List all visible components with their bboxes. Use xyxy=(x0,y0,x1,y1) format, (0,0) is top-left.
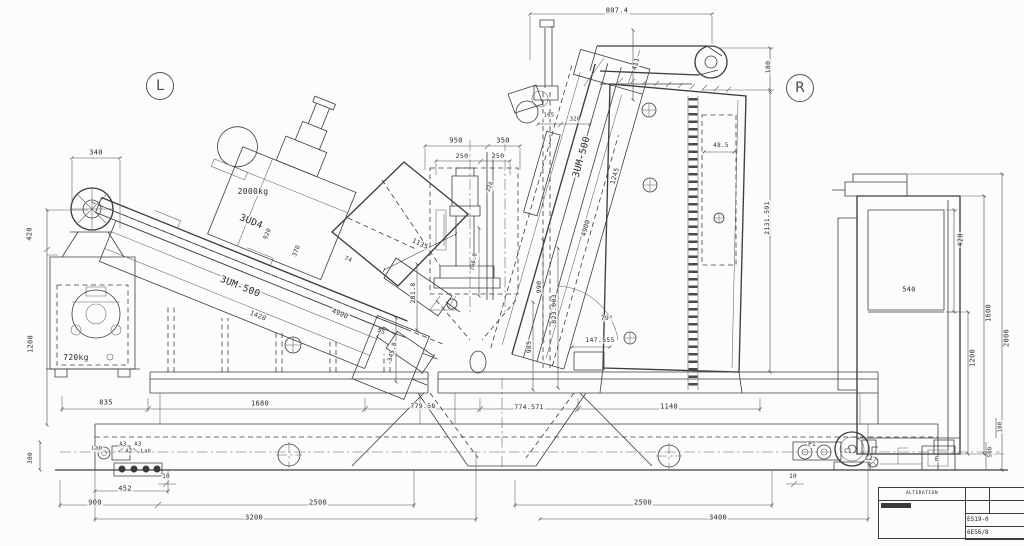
dim-label: 900 xyxy=(87,500,103,507)
dim-label: 55 xyxy=(375,327,386,336)
title-block-code: ES19-0 xyxy=(965,514,1024,527)
dim-label: 720kg xyxy=(62,354,90,362)
dim-label: 452 xyxy=(117,486,133,493)
dim-label: 835 xyxy=(98,400,114,407)
dim-label: 48.5 xyxy=(712,143,730,149)
dim-label: 4900 xyxy=(580,218,591,238)
dim-label: 79° xyxy=(600,315,615,322)
dim-label: 2500 xyxy=(308,500,328,507)
title-block: ALTERATION ES19-0 6E56/8 xyxy=(878,487,1024,539)
dim-label: A3 xyxy=(118,442,127,448)
dim-label: 990 xyxy=(536,280,543,295)
dim-label: 3UD4 xyxy=(237,213,265,232)
dim-label: 2000kg xyxy=(237,188,270,196)
dim-label: 250 xyxy=(491,153,506,160)
title-block-smudge xyxy=(881,503,911,508)
dim-label: 411 xyxy=(631,56,641,72)
dim-label: A3 xyxy=(133,442,142,448)
dim-label: 4900 xyxy=(330,307,350,320)
title-block-row xyxy=(965,488,1024,501)
dim-label: 2131.591 xyxy=(764,200,771,236)
title-block-right: ES19-0 6E56/8 xyxy=(965,488,1024,538)
dim-label: 10 xyxy=(788,474,798,480)
dim-label: C1 xyxy=(843,449,853,455)
title-block-row xyxy=(965,501,1024,514)
dim-label: 226 xyxy=(486,180,496,194)
dim-label: 300 xyxy=(28,451,34,465)
dim-label: 1135 xyxy=(410,237,430,251)
title-block-header: ALTERATION xyxy=(879,488,965,501)
dim-label: 250 xyxy=(455,153,470,160)
dim-label: 2500 xyxy=(633,500,653,507)
dim-label: 1200 xyxy=(970,348,977,368)
dim-label: 823.003 xyxy=(551,293,558,325)
dim-label: 10 xyxy=(161,474,171,480)
dim-label: 766.0 xyxy=(471,252,480,273)
dim-label: 1600 xyxy=(986,303,993,323)
dim-label: 1140 xyxy=(659,404,679,411)
dim-label: 540 xyxy=(901,287,917,294)
dim-label: 1200 xyxy=(28,334,35,354)
dim-label: 774.571 xyxy=(513,404,545,411)
dim-label: 3UM-500 xyxy=(571,134,592,179)
dim-label: 3400 xyxy=(708,515,728,522)
dim-label: 281.8 xyxy=(410,281,417,304)
dim-label: 1245 xyxy=(609,166,620,186)
dim-label: 165 xyxy=(543,113,556,119)
dim-label: 370 xyxy=(292,244,303,259)
title-block-left: ALTERATION xyxy=(879,488,966,538)
dim-label: P1 xyxy=(807,442,817,448)
dim-label: C2 xyxy=(864,456,874,462)
dim-label: 500 xyxy=(988,446,994,459)
dim-label: 420 xyxy=(27,226,34,242)
dim-label: 950 xyxy=(448,138,464,145)
dim-label: 147.555 xyxy=(584,337,616,344)
dim-label: 2000 xyxy=(1004,328,1011,348)
dim-label: 920 xyxy=(263,227,274,242)
dim-label: 345.8 xyxy=(387,341,398,363)
title-block-ref: 6E56/8 xyxy=(965,527,1024,540)
dim-label: Lab xyxy=(140,449,153,455)
dim-label: 320 xyxy=(569,117,582,123)
dim-label: 3200 xyxy=(244,515,264,522)
dim-label: 779.58 xyxy=(409,403,436,410)
dim-label: 1420 xyxy=(248,309,268,322)
dim-label: 1680 xyxy=(250,401,270,408)
dim-label: 985 xyxy=(526,340,533,355)
dim-label: 180 xyxy=(765,60,772,75)
view-marker-R: R xyxy=(786,74,814,102)
drawing-sheet: 807.441118048.52131.5911653203UM-5001245… xyxy=(0,0,1024,546)
view-marker-L: L xyxy=(146,72,174,100)
dim-label: 74 xyxy=(342,255,353,264)
dim-label: 340 xyxy=(88,150,104,157)
dim-label: 420 xyxy=(958,232,965,248)
dim-label: 3UM-500 xyxy=(218,274,262,299)
dim-label: A2 xyxy=(124,449,133,455)
dim-label: 350 xyxy=(495,138,511,145)
dim-label: 100 xyxy=(998,421,1004,434)
dim-label: Lab xyxy=(91,446,104,452)
dim-label: 807.4 xyxy=(605,8,630,15)
dim-label: E xyxy=(934,456,940,463)
